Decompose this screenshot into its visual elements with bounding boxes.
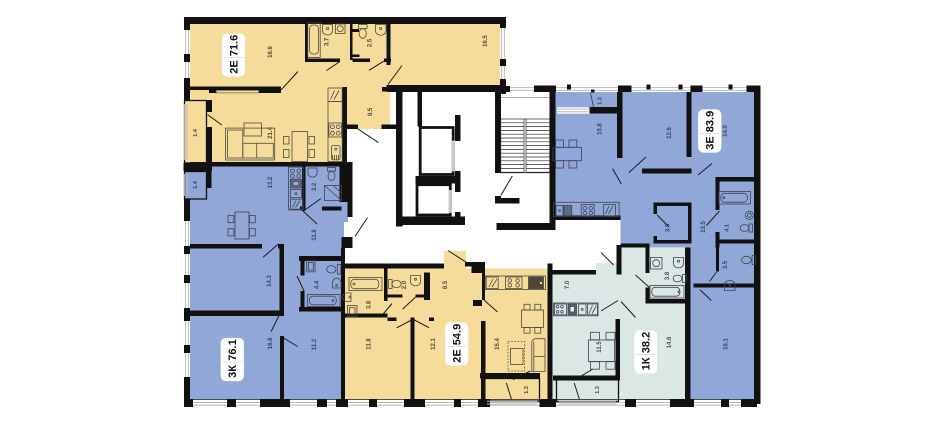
- svg-text:11.2: 11.2: [312, 338, 318, 350]
- svg-text:15.8: 15.8: [598, 123, 604, 135]
- svg-text:11.5: 11.5: [597, 341, 603, 353]
- svg-text:2Е: 2Е: [228, 60, 240, 73]
- svg-text:3.0: 3.0: [666, 223, 672, 232]
- svg-text:12.1: 12.1: [431, 338, 437, 350]
- svg-text:14.6: 14.6: [667, 336, 673, 348]
- svg-text:2.5: 2.5: [368, 38, 374, 47]
- svg-text:7.0: 7.0: [565, 280, 571, 289]
- svg-text:13.5: 13.5: [701, 221, 707, 233]
- svg-text:1.3: 1.3: [524, 386, 530, 394]
- svg-text:3.8: 3.8: [665, 271, 671, 280]
- svg-text:1.4: 1.4: [193, 180, 199, 189]
- svg-text:16.6: 16.6: [268, 337, 274, 349]
- svg-text:2Е: 2Е: [452, 349, 464, 362]
- svg-text:2.0: 2.0: [402, 280, 408, 289]
- svg-text:14.3: 14.3: [267, 275, 273, 287]
- svg-text:3К: 3К: [227, 365, 239, 378]
- svg-text:71.6: 71.6: [228, 35, 240, 56]
- svg-text:11.8: 11.8: [367, 338, 373, 350]
- svg-text:16.6: 16.6: [268, 46, 274, 58]
- svg-text:14.0: 14.0: [723, 125, 729, 137]
- svg-text:76.1: 76.1: [227, 339, 239, 360]
- svg-text:3.5: 3.5: [723, 260, 729, 269]
- svg-text:12.6: 12.6: [667, 127, 673, 139]
- svg-text:54.9: 54.9: [452, 324, 464, 345]
- svg-text:15.4: 15.4: [495, 338, 501, 350]
- svg-text:3.7: 3.7: [325, 37, 331, 46]
- svg-text:83.9: 83.9: [705, 111, 717, 132]
- svg-text:38.2: 38.2: [641, 332, 653, 353]
- svg-text:9.5: 9.5: [368, 107, 374, 116]
- svg-text:11.8: 11.8: [312, 229, 318, 241]
- svg-text:13.2: 13.2: [268, 176, 274, 188]
- svg-text:1.3: 1.3: [595, 386, 601, 394]
- svg-text:4.1: 4.1: [725, 224, 731, 232]
- svg-text:3.8: 3.8: [367, 300, 373, 309]
- svg-text:16.1: 16.1: [724, 338, 730, 350]
- svg-text:1.4: 1.4: [193, 128, 199, 137]
- svg-text:8.5: 8.5: [443, 280, 449, 289]
- svg-text:3Е: 3Е: [705, 136, 717, 149]
- svg-text:16.5: 16.5: [483, 35, 489, 47]
- svg-text:3.2: 3.2: [312, 182, 318, 191]
- svg-text:1К: 1К: [641, 357, 653, 370]
- svg-text:1.3: 1.3: [598, 97, 604, 105]
- svg-text:21.4: 21.4: [268, 127, 274, 139]
- svg-text:4.4: 4.4: [315, 280, 321, 289]
